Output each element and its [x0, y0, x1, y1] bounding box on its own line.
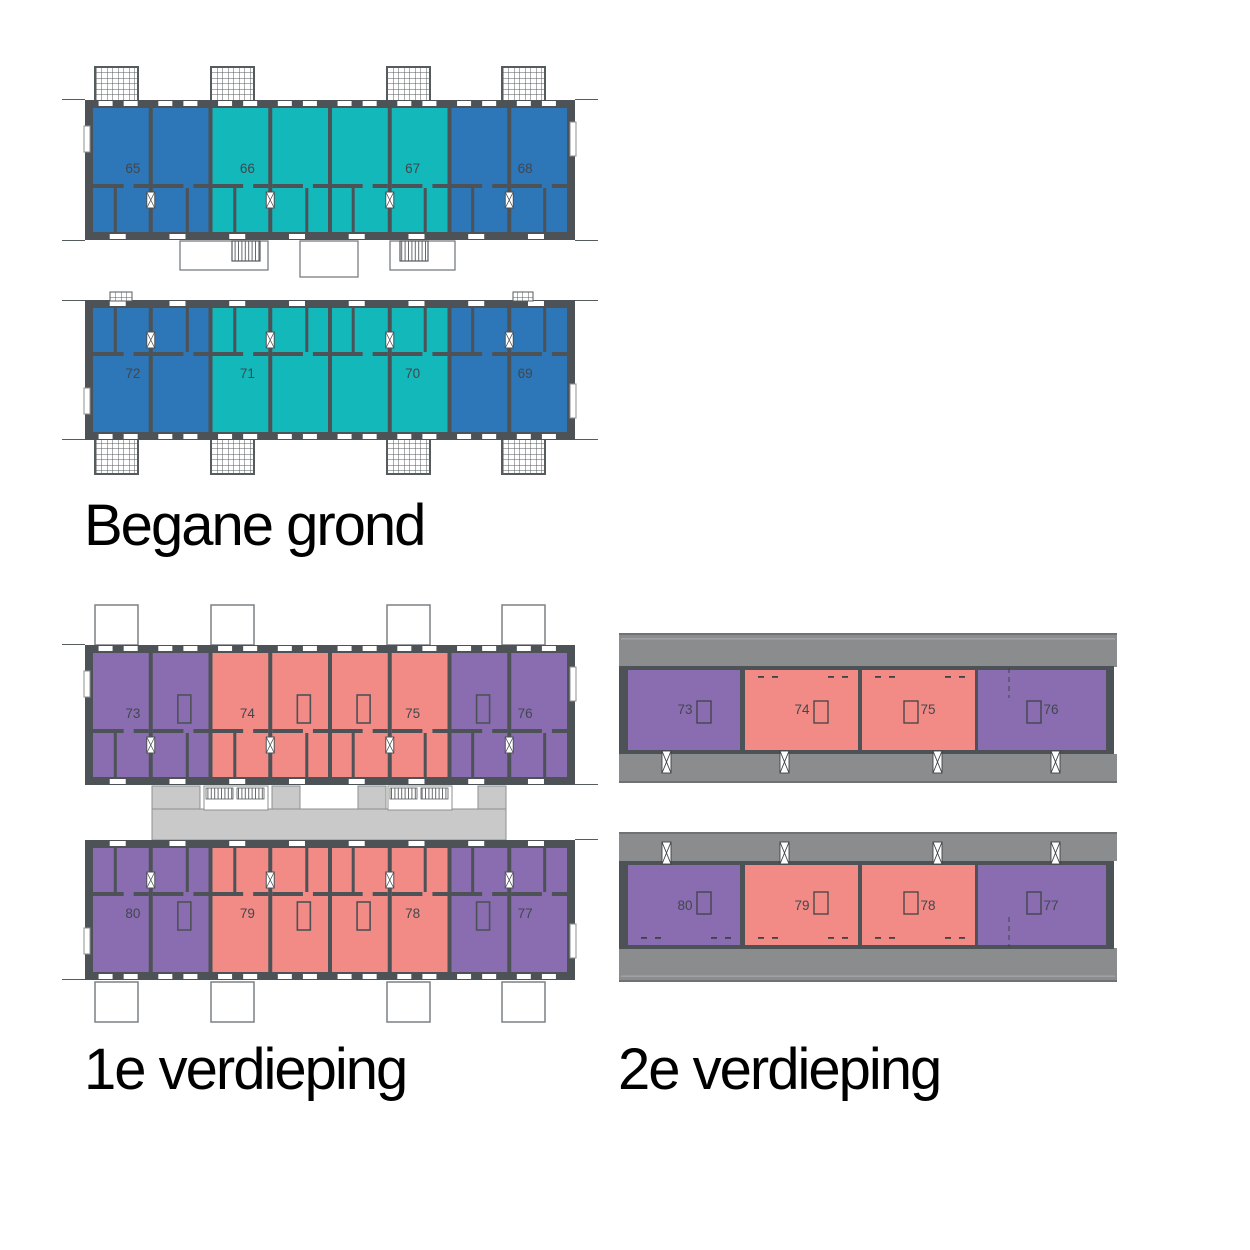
window-opening: [278, 101, 292, 106]
unit-69-room: [452, 308, 508, 432]
unit-number-65: 65: [125, 161, 140, 176]
roof-hatch: [513, 292, 533, 301]
balcony-open: [95, 982, 138, 1022]
window-opening: [124, 646, 138, 651]
balcony-grid: [95, 438, 138, 474]
window-opening: [183, 646, 197, 651]
window-opening: [397, 434, 411, 439]
begane-grond-south-block: 72717069: [84, 300, 576, 474]
unit-number-69: 69: [518, 366, 533, 381]
unit-68-room: [452, 108, 508, 232]
window-opening: [229, 301, 245, 306]
floor-label-1e-verdieping: 1e verdieping: [84, 1038, 406, 1102]
stair-treads: [237, 788, 264, 799]
roof-band: [619, 635, 1117, 667]
entrance-stair: [400, 241, 428, 261]
window-opening: [517, 646, 531, 651]
window-opening: [397, 101, 411, 106]
balcony-grid: [387, 67, 430, 103]
floor-label-begane-grond: Begane grond: [84, 494, 424, 558]
dash-mark: [758, 676, 764, 678]
window-opening: [229, 841, 245, 846]
porch-outline: [300, 241, 358, 277]
window-opening: [363, 434, 377, 439]
balcony-open: [502, 982, 545, 1022]
side-window: [84, 126, 90, 152]
unit-70-room: [332, 308, 388, 432]
roof-band: [619, 948, 1117, 980]
stair-treads: [206, 788, 233, 799]
dash-mark: [889, 937, 895, 939]
dash-mark: [711, 937, 717, 939]
unit-80-room: [153, 848, 209, 972]
window-opening: [243, 974, 257, 979]
window-opening: [338, 101, 352, 106]
unit-number-77: 77: [518, 906, 533, 921]
window-opening: [124, 101, 138, 106]
unit-67-room: [332, 108, 388, 232]
window-opening: [397, 646, 411, 651]
window-opening: [517, 974, 531, 979]
balcony-grid: [502, 438, 545, 474]
unit-number-74: 74: [794, 702, 810, 717]
window-opening: [528, 841, 544, 846]
side-window: [570, 122, 576, 156]
window-opening: [169, 779, 185, 784]
window-opening: [243, 101, 257, 106]
unit-number-78: 78: [920, 898, 935, 913]
eerste-verdieping-south-block: 80797877: [84, 840, 576, 1022]
unit-number-76: 76: [518, 706, 533, 721]
window-opening: [528, 234, 544, 239]
window-opening: [229, 234, 245, 239]
window-opening: [457, 646, 471, 651]
balcony-open: [387, 605, 430, 645]
balcony-open: [502, 605, 545, 645]
window-opening: [482, 974, 496, 979]
window-opening: [158, 646, 172, 651]
window-opening: [408, 301, 424, 306]
window-opening: [338, 646, 352, 651]
stair-treads: [390, 788, 417, 799]
window-opening: [408, 234, 424, 239]
dash-mark: [655, 937, 661, 939]
dash-mark: [875, 676, 881, 678]
window-opening: [349, 301, 365, 306]
window-opening: [218, 646, 232, 651]
balcony-open: [211, 605, 254, 645]
balcony-grid: [502, 67, 545, 103]
balcony-open: [387, 982, 430, 1022]
unit-number-73: 73: [677, 702, 692, 717]
window-opening: [243, 434, 257, 439]
window-opening: [218, 434, 232, 439]
window-opening: [349, 779, 365, 784]
balcony-open: [211, 982, 254, 1022]
window-opening: [468, 234, 484, 239]
window-opening: [542, 974, 556, 979]
window-opening: [363, 646, 377, 651]
window-opening: [278, 974, 292, 979]
floor-label-2e-verdieping: 2e verdieping: [618, 1038, 940, 1102]
window-opening: [124, 434, 138, 439]
unit-number-78: 78: [405, 906, 420, 921]
window-opening: [110, 779, 126, 784]
balcony-open: [95, 605, 138, 645]
unit-number-80: 80: [677, 898, 692, 913]
window-opening: [229, 779, 245, 784]
window-opening: [468, 841, 484, 846]
dash-mark: [889, 676, 895, 678]
unit-78-room: [332, 848, 388, 972]
window-opening: [349, 234, 365, 239]
side-window: [570, 667, 576, 701]
unit-number-67: 67: [405, 161, 420, 176]
roof-hatch: [110, 292, 132, 301]
stair-treads: [421, 788, 448, 799]
side-window: [84, 928, 90, 954]
window-opening: [183, 101, 197, 106]
walkway-deck: [152, 809, 506, 840]
window-opening: [158, 434, 172, 439]
unit-number-72: 72: [125, 366, 140, 381]
window-opening: [468, 301, 484, 306]
dash-mark: [842, 676, 848, 678]
window-opening: [457, 974, 471, 979]
window-opening: [303, 434, 317, 439]
window-opening: [169, 841, 185, 846]
dash-mark: [959, 937, 965, 939]
dash-mark: [772, 676, 778, 678]
side-window: [570, 384, 576, 418]
window-opening: [289, 841, 305, 846]
balcony-grid: [211, 438, 254, 474]
window-opening: [422, 101, 436, 106]
unit-number-79: 79: [240, 906, 255, 921]
window-opening: [349, 841, 365, 846]
side-window: [84, 671, 90, 697]
window-opening: [422, 974, 436, 979]
window-opening: [99, 974, 113, 979]
window-opening: [338, 434, 352, 439]
window-opening: [110, 841, 126, 846]
window-opening: [110, 301, 126, 306]
unit-number-74: 74: [240, 706, 256, 721]
unit-number-76: 76: [1043, 702, 1058, 717]
balcony-grid: [211, 67, 254, 103]
window-opening: [183, 974, 197, 979]
window-opening: [289, 301, 305, 306]
window-opening: [158, 974, 172, 979]
floor-plan-canvas: 6566676872717069737475768079787773747576…: [0, 0, 1250, 1250]
window-opening: [99, 101, 113, 106]
window-opening: [169, 234, 185, 239]
window-opening: [542, 646, 556, 651]
unit-76-area: [978, 670, 1106, 750]
window-opening: [517, 101, 531, 106]
window-opening: [158, 101, 172, 106]
window-opening: [528, 779, 544, 784]
unit-65-room: [153, 108, 209, 232]
unit-74-room: [272, 653, 328, 777]
window-opening: [482, 434, 496, 439]
window-opening: [303, 974, 317, 979]
gallery-band: [619, 754, 1117, 781]
window-opening: [99, 434, 113, 439]
unit-76-room: [452, 653, 508, 777]
eerste-verdieping-north-block: 73747576: [84, 605, 576, 785]
dash-mark: [945, 676, 951, 678]
dash-mark: [945, 937, 951, 939]
window-opening: [110, 234, 126, 239]
window-opening: [363, 101, 377, 106]
dash-mark: [828, 937, 834, 939]
window-opening: [457, 434, 471, 439]
window-opening: [169, 301, 185, 306]
window-opening: [363, 974, 377, 979]
window-opening: [278, 646, 292, 651]
window-opening: [482, 101, 496, 106]
side-window: [84, 388, 90, 414]
window-opening: [457, 101, 471, 106]
unit-number-66: 66: [240, 161, 255, 176]
window-opening: [289, 779, 305, 784]
unit-75-room: [332, 653, 388, 777]
gallery-band: [619, 834, 1117, 861]
unit-72-room: [153, 308, 209, 432]
unit-77-room: [452, 848, 508, 972]
window-opening: [468, 779, 484, 784]
tweede-verdieping-north-block: 73747576: [619, 633, 1117, 783]
window-opening: [408, 779, 424, 784]
unit-number-80: 80: [125, 906, 140, 921]
window-opening: [183, 434, 197, 439]
dash-mark: [758, 937, 764, 939]
window-opening: [243, 646, 257, 651]
window-opening: [289, 234, 305, 239]
window-opening: [303, 646, 317, 651]
unit-number-70: 70: [405, 366, 420, 381]
window-opening: [99, 646, 113, 651]
dash-mark: [725, 937, 731, 939]
dash-mark: [641, 937, 647, 939]
begane-grond-north-block: 65666768: [84, 67, 576, 240]
unit-number-73: 73: [125, 706, 140, 721]
unit-number-71: 71: [240, 366, 255, 381]
entrance-stair: [232, 241, 260, 261]
unit-number-77: 77: [1043, 898, 1058, 913]
window-opening: [303, 101, 317, 106]
balcony-grid: [95, 67, 138, 103]
gallery-walkway: [152, 786, 506, 840]
unit-number-79: 79: [794, 898, 809, 913]
dash-mark: [842, 937, 848, 939]
unit-number-68: 68: [518, 161, 533, 176]
dash-mark: [772, 937, 778, 939]
window-opening: [542, 434, 556, 439]
unit-number-75: 75: [405, 706, 420, 721]
unit-79-room: [272, 848, 328, 972]
balcony-grid: [387, 438, 430, 474]
unit-71-room: [272, 308, 328, 432]
dash-mark: [875, 937, 881, 939]
window-opening: [397, 974, 411, 979]
window-opening: [218, 101, 232, 106]
unit-77-area: [978, 865, 1106, 945]
window-opening: [517, 434, 531, 439]
window-opening: [422, 646, 436, 651]
window-opening: [338, 974, 352, 979]
unit-number-75: 75: [920, 702, 935, 717]
window-opening: [422, 434, 436, 439]
dash-mark: [959, 676, 965, 678]
window-opening: [528, 301, 544, 306]
unit-73-room: [153, 653, 209, 777]
side-window: [570, 924, 576, 958]
window-opening: [542, 101, 556, 106]
window-opening: [482, 646, 496, 651]
unit-66-room: [272, 108, 328, 232]
window-opening: [124, 974, 138, 979]
window-opening: [278, 434, 292, 439]
window-opening: [408, 841, 424, 846]
tweede-verdieping-south-block: 80797877: [619, 832, 1117, 982]
window-opening: [218, 974, 232, 979]
dash-mark: [828, 676, 834, 678]
